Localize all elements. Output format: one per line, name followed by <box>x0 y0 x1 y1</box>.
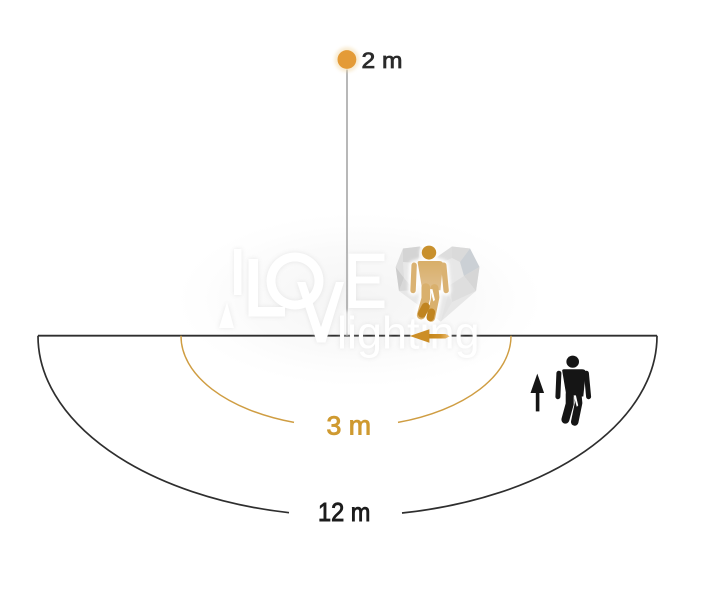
svg-text:lighting: lighting <box>337 308 480 359</box>
svg-text:2 m: 2 m <box>362 48 403 73</box>
svg-text:12 m: 12 m <box>318 497 370 527</box>
svg-text:3 m: 3 m <box>327 413 372 441</box>
